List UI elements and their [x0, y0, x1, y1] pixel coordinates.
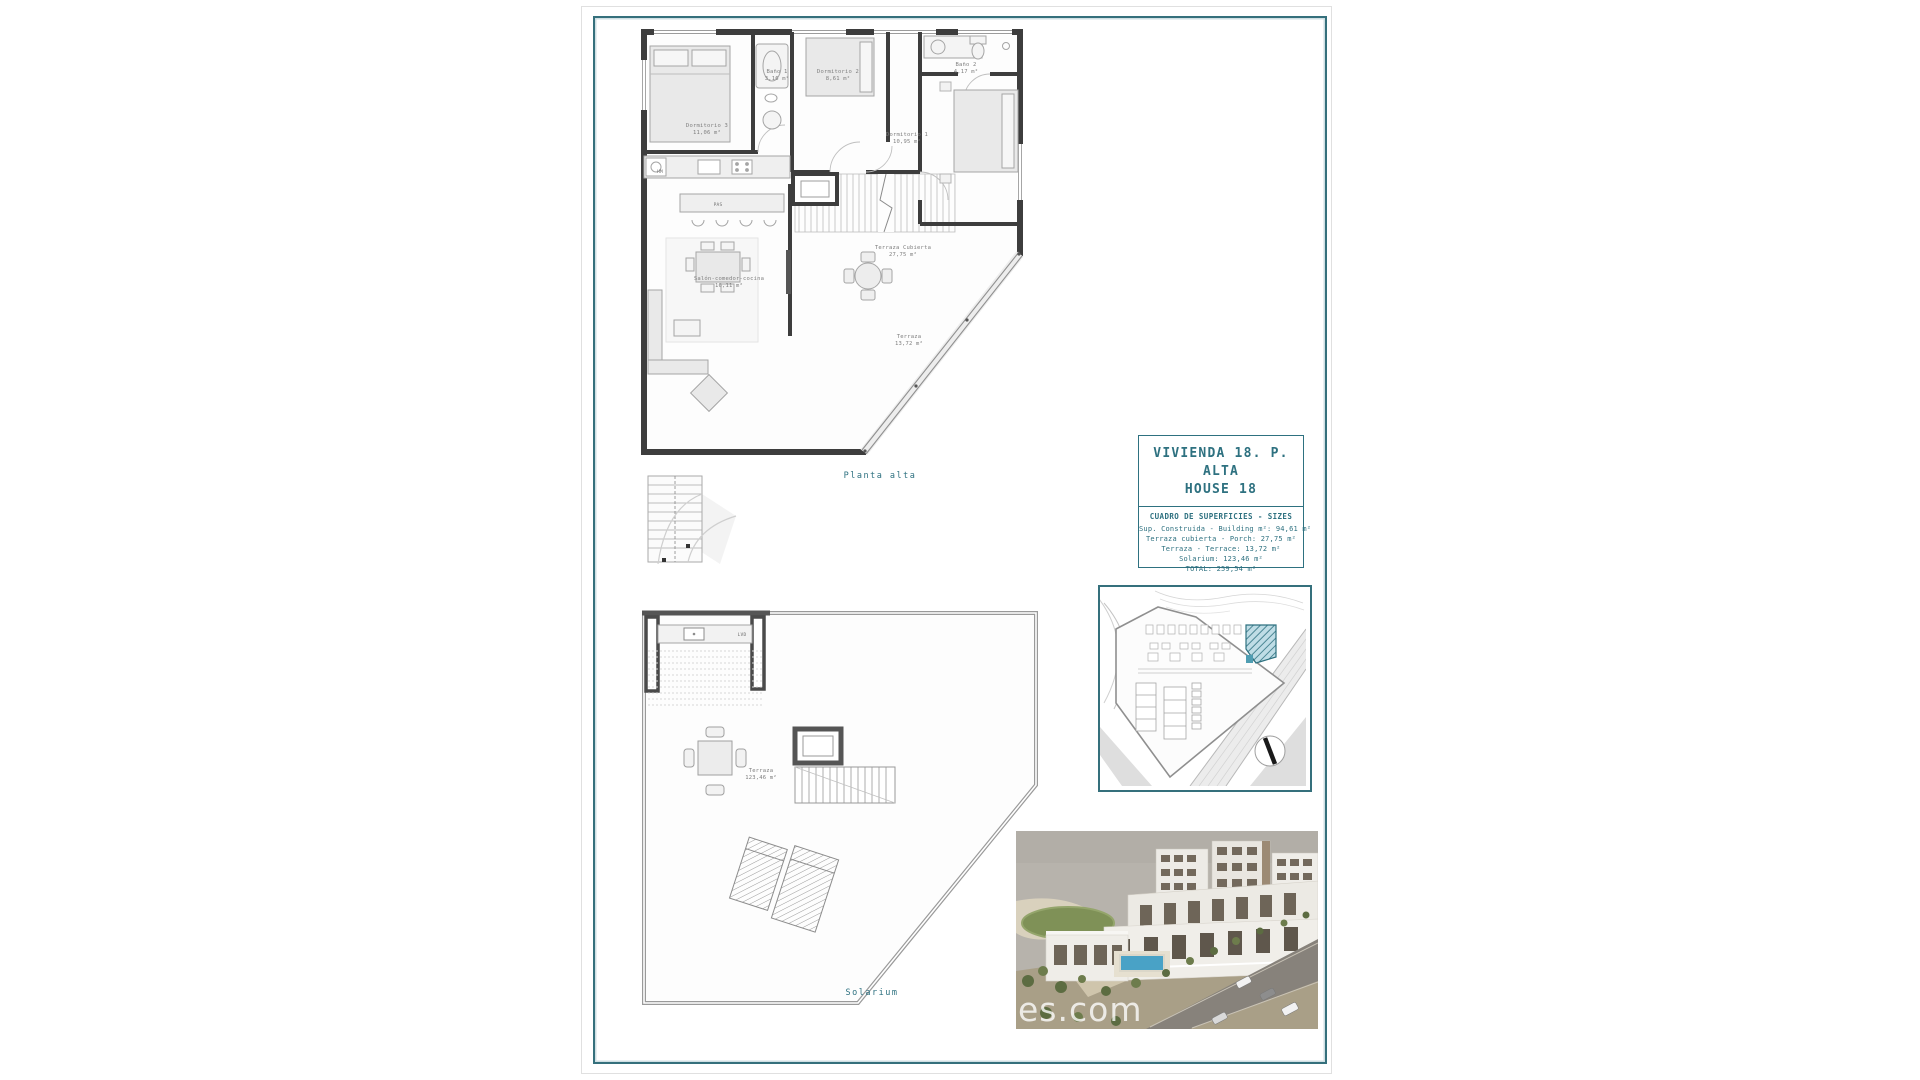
room-label-dormitorio-2: Dormitorio 28,61 m²: [817, 69, 859, 82]
title-line-2: HOUSE 18: [1139, 481, 1303, 499]
surface-row: Terraza cubierta - Porch: 27,75 m²: [1139, 534, 1303, 544]
site-plan-drawing: [1100, 587, 1306, 786]
room-label-terraza-cubierta: Terraza Cubierta27,75 m²: [875, 245, 931, 258]
room-label-bano-1: Baño 13,16 m²: [765, 69, 790, 82]
site-plan-box: [1098, 585, 1312, 792]
stair-run: [795, 767, 895, 803]
watermark-text: es.com: [1018, 990, 1142, 1029]
title-divider: [1139, 506, 1303, 507]
plan-caption-solarium: Solarium: [846, 988, 899, 998]
bed-dormitorio-2: [806, 38, 874, 96]
room-label-dormitorio-3: Dormitorio 311,06 m²: [686, 123, 728, 136]
solarium-plan-drawing: [640, 605, 1040, 1015]
room-label-dormitorio-1: Dormitorio 110,95 m²: [886, 132, 928, 145]
surface-row: Sup. Construida - Building m²: 94,61 m²: [1139, 524, 1303, 534]
label-pantry: PAS: [714, 203, 723, 208]
plan-sheet: Planta alta Solarium Dormitorio 311,06 m…: [0, 0, 1920, 1080]
highlighted-unit-notch: [1246, 655, 1253, 663]
room-label-terraza: Terraza13,72 m²: [895, 334, 923, 347]
column: [752, 617, 764, 689]
north-needle-icon: [1255, 736, 1285, 766]
upper-floor-plan-drawing: [640, 24, 1024, 564]
surface-row: Terraza - Terrace: 13,72 m²: [1139, 544, 1303, 554]
render-image: es.com: [1016, 831, 1318, 1029]
plan-caption-planta-alta: Planta alta: [844, 471, 917, 481]
column: [646, 617, 658, 691]
title-line-1: VIVIENDA 18. P. ALTA: [1139, 445, 1303, 481]
title-block: VIVIENDA 18. P. ALTA HOUSE 18 CUADRO DE …: [1138, 435, 1304, 568]
exterior-stair: [648, 476, 736, 564]
surface-row: TOTAL: 259,54 m²: [1139, 564, 1303, 574]
label-laundry: LVD: [738, 633, 747, 638]
surface-table-title: CUADRO DE SUPERFICIES - SIZES: [1139, 512, 1303, 521]
room-label-salon: Salón-comedor-cocina16,11 m²: [694, 276, 764, 289]
label-washer: HM: [657, 170, 663, 175]
room-label-solarium-terraza: Terraza123,46 m²: [745, 768, 777, 781]
surface-row: Solarium: 123,46 m²: [1139, 554, 1303, 564]
room-label-bano-2: Baño 24,17 m²: [954, 62, 979, 75]
